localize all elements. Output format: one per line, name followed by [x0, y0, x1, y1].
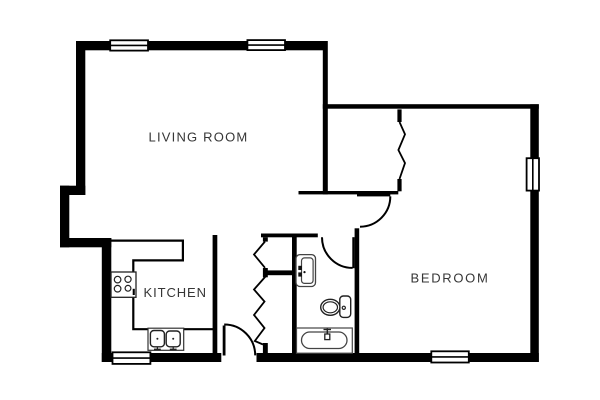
- svg-text:KITCHEN: KITCHEN: [144, 285, 207, 300]
- svg-text:BEDROOM: BEDROOM: [410, 270, 489, 285]
- svg-text:LIVING ROOM: LIVING ROOM: [149, 129, 249, 144]
